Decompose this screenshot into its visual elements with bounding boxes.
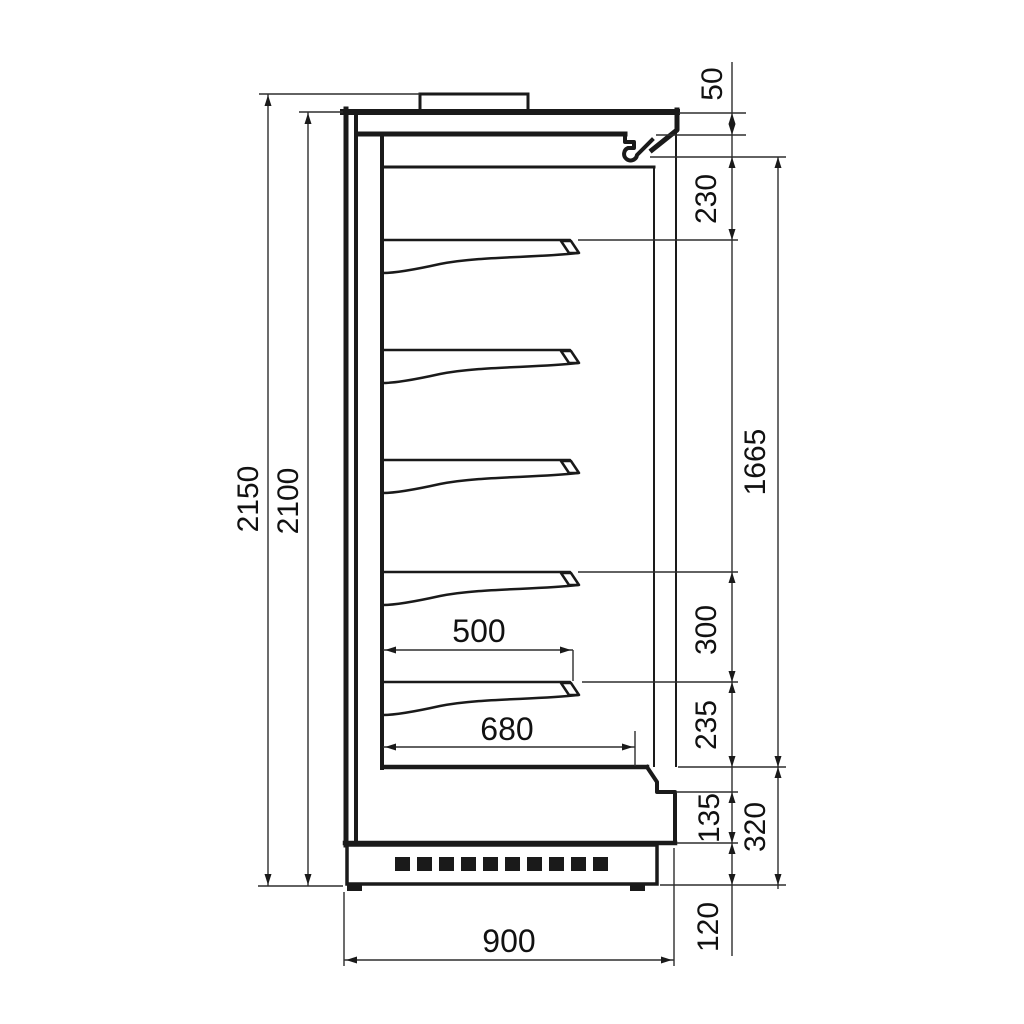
arrow bbox=[560, 647, 571, 654]
arrow bbox=[661, 957, 672, 964]
arrow bbox=[305, 874, 312, 885]
dim-label-deck-depth: 680 bbox=[480, 711, 533, 747]
grille-slot bbox=[593, 857, 608, 871]
dim-label-cabinet-height: 2100 bbox=[272, 468, 305, 535]
arrow bbox=[729, 671, 736, 682]
grille-slot bbox=[439, 857, 454, 871]
dimension-labels: 2150 2100 50 230 1665 300 235 135 320 12… bbox=[232, 67, 772, 959]
dim-label-bottom-section: 235 bbox=[690, 700, 723, 750]
cabinet-body bbox=[343, 94, 677, 884]
shelf-3 bbox=[383, 460, 579, 493]
side-section-drawing: 2150 2100 50 230 1665 300 235 135 320 12… bbox=[0, 0, 1024, 1024]
air-outlet-curl bbox=[624, 134, 652, 160]
dim-label-shelf-depth: 500 bbox=[452, 613, 505, 649]
arrow bbox=[729, 157, 736, 168]
arrow bbox=[346, 957, 357, 964]
dim-label-opening-height: 1665 bbox=[739, 429, 772, 496]
dim-label-top-panel: 50 bbox=[696, 67, 729, 100]
arrow bbox=[305, 113, 312, 124]
grille-slot bbox=[483, 857, 498, 871]
arrow bbox=[729, 124, 736, 135]
arrow bbox=[729, 572, 736, 583]
arrow bbox=[729, 832, 736, 843]
technical-drawing-page: 2150 2100 50 230 1665 300 235 135 320 12… bbox=[0, 0, 1024, 1024]
arrow bbox=[729, 874, 736, 885]
arrow bbox=[265, 95, 272, 106]
dim-label-base-height: 320 bbox=[739, 802, 772, 852]
arrow bbox=[775, 756, 782, 767]
shelf-4 bbox=[383, 572, 579, 605]
grille-slot bbox=[527, 857, 542, 871]
arrow bbox=[729, 792, 736, 803]
dim-label-shelf-spacing: 300 bbox=[690, 605, 723, 655]
arrow bbox=[729, 756, 736, 767]
arrow bbox=[385, 744, 396, 751]
grille-slot bbox=[461, 857, 476, 871]
dim-label-depth: 900 bbox=[482, 923, 535, 959]
dim-label-total-height: 2150 bbox=[232, 466, 265, 533]
arrow bbox=[729, 843, 736, 854]
dim-label-kick-height: 135 bbox=[693, 793, 726, 843]
arrow bbox=[775, 767, 782, 778]
shelf-bracket-curve bbox=[383, 473, 578, 493]
arrow bbox=[729, 113, 736, 124]
grille-slot bbox=[505, 857, 520, 871]
grille-slot bbox=[417, 857, 432, 871]
grille-slot bbox=[395, 857, 410, 871]
shelf-lip bbox=[561, 351, 579, 363]
plinth bbox=[347, 845, 657, 884]
shelf-lip bbox=[561, 573, 579, 585]
dim-label-top-section: 230 bbox=[690, 174, 723, 224]
grille-slot bbox=[571, 857, 586, 871]
front-step-profile bbox=[647, 767, 675, 843]
shelf-lip bbox=[561, 461, 579, 473]
grille-slot bbox=[549, 857, 564, 871]
arrow bbox=[729, 682, 736, 693]
arrow bbox=[775, 157, 782, 168]
shelf-lip bbox=[561, 241, 579, 253]
arrow bbox=[265, 874, 272, 885]
shelf-lip bbox=[561, 683, 579, 695]
canopy-right-profile bbox=[652, 110, 677, 150]
foot-left bbox=[347, 884, 362, 891]
shelf-bracket-curve bbox=[383, 253, 578, 273]
foot-right bbox=[630, 884, 645, 891]
arrow bbox=[622, 744, 633, 751]
arrow bbox=[775, 874, 782, 885]
shelf-2 bbox=[383, 350, 579, 383]
arrow bbox=[385, 647, 396, 654]
shelf-1 bbox=[383, 240, 579, 273]
arrow bbox=[729, 229, 736, 240]
shelf-bracket-curve bbox=[383, 363, 578, 383]
dim-label-plinth-height: 120 bbox=[692, 902, 725, 952]
shelf-bracket-curve bbox=[383, 585, 578, 605]
